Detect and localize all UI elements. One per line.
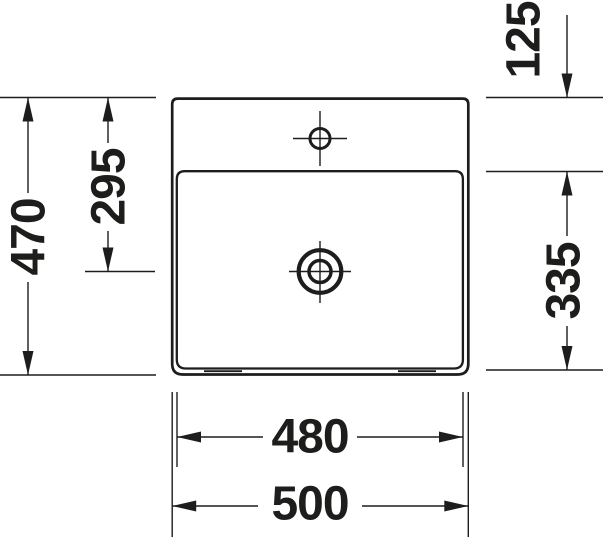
arrow-295-down: [103, 248, 114, 272]
dim-label-back-edge-to-drain: 295: [83, 148, 136, 225]
dim-label-bowl-width: 480: [271, 411, 348, 464]
arrow-335-up: [562, 172, 573, 196]
arrow-125-down: [562, 74, 573, 98]
dim-label-bowl-depth: 335: [538, 242, 591, 319]
faucet-hole-icon: [293, 111, 347, 166]
dim-label-back-edge-to-bowl: 125: [498, 1, 551, 78]
arrow-480-left: [177, 432, 201, 443]
dim-label-overall-depth: 470: [3, 198, 56, 275]
dim-label-overall-width: 500: [271, 478, 348, 531]
arrow-470-down: [23, 351, 34, 375]
arrow-295-up: [103, 98, 114, 122]
arrow-500-left: [172, 501, 196, 512]
drawing-canvas: 470 295 125 335 480 500: [0, 0, 605, 538]
dimension-labels-group: 470 295 125 335 480 500: [3, 1, 591, 530]
arrow-500-right: [444, 501, 468, 512]
drain-icon: [289, 241, 351, 303]
arrow-480-right: [439, 432, 463, 443]
washbasin-technical-drawing: 470 295 125 335 480 500: [0, 0, 605, 538]
arrow-470-up: [23, 98, 34, 122]
arrow-335-down: [562, 346, 573, 370]
